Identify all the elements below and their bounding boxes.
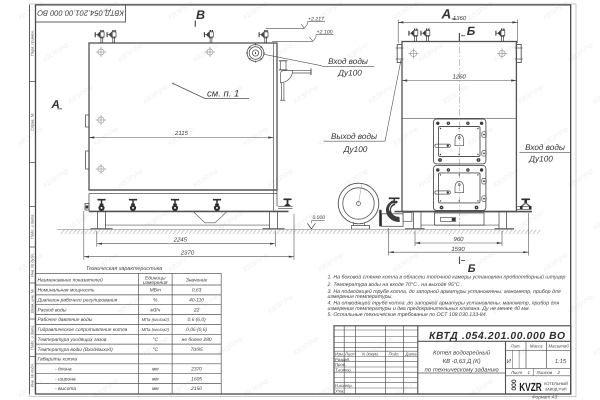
svg-text:КВЗР.РФ: КВЗР.РФ: [142, 84, 170, 106]
svg-text:КВЗР.РФ: КВЗР.РФ: [292, 84, 320, 106]
svg-text:1: 1: [528, 370, 531, 375]
svg-text:N докум.: N докум.: [362, 352, 379, 357]
svg-text:- ширина: - ширина: [55, 377, 76, 382]
svg-text:КВЗР.РФ: КВЗР.РФ: [517, 210, 545, 232]
svg-text:Изм.: Изм.: [335, 352, 344, 357]
svg-text:ООО: ООО: [511, 380, 518, 391]
svg-text:Формат А3: Формат А3: [532, 394, 558, 399]
svg-text:КВЗР.РФ: КВЗР.РФ: [467, 0, 495, 22]
svg-text:Диапазон рабочего регулировани: Диапазон рабочего регулирования: [37, 298, 118, 304]
svg-text:КВЗР.РФ: КВЗР.РФ: [417, 168, 445, 190]
svg-text:МПа (кгс/см2): МПа (кгс/см2): [142, 327, 170, 332]
svg-text:Листов: Листов: [536, 370, 553, 375]
svg-text:2: 2: [557, 370, 561, 375]
svg-text:мм: мм: [152, 387, 159, 392]
svg-text:Вход воды: Вход воды: [525, 143, 565, 152]
svg-text:КВЗР.РФ: КВЗР.РФ: [117, 42, 145, 64]
svg-text:Утв.: Утв.: [335, 388, 345, 393]
svg-text:Вход воды: Вход воды: [328, 57, 368, 66]
svg-text:КВЗР.РФ: КВЗР.РФ: [217, 210, 245, 232]
svg-text:0,63: 0,63: [192, 288, 202, 294]
svg-text:Номинальная мощность: Номинальная мощность: [38, 288, 96, 294]
svg-text:40-110: 40-110: [189, 298, 204, 304]
svg-text:0,06 (0,6): 0,06 (0,6): [186, 327, 207, 333]
svg-text:КВЗР.РФ: КВЗР.РФ: [267, 168, 295, 190]
svg-text:Ду100: Ду100: [528, 155, 553, 164]
svg-text:КВТД.054.201.00.000 ВО: КВТД.054.201.00.000 ВО: [37, 8, 124, 17]
svg-text:КВЗР.РФ: КВЗР.РФ: [267, 294, 295, 316]
svg-text:70/95: 70/95: [190, 347, 203, 353]
svg-text:Котел водогрейный: Котел водогрейный: [433, 350, 491, 357]
svg-text:мм: мм: [152, 377, 159, 382]
svg-text:Значение: Значение: [186, 277, 208, 283]
svg-text:Справ. №: Справ. №: [30, 112, 35, 130]
svg-text:измерения температуры и два пр: измерения температуры и два предохраните…: [328, 306, 531, 312]
svg-text:КВЗР.РФ: КВЗР.РФ: [192, 168, 220, 190]
svg-text:КВЗР.РФ: КВЗР.РФ: [592, 84, 600, 106]
svg-text:МПа (кгс/см2): МПа (кгс/см2): [142, 317, 170, 322]
svg-text:КВЗР.РФ: КВЗР.РФ: [442, 84, 470, 106]
svg-text:ЗАВОД РЭП: ЗАВОД РЭП: [545, 388, 567, 392]
svg-text:2115: 2115: [174, 130, 189, 137]
svg-text:КВЗР.РФ: КВЗР.РФ: [567, 294, 595, 316]
svg-text:измерения: измерения: [143, 281, 168, 286]
svg-text:Дата: Дата: [405, 352, 418, 357]
svg-text:КВЗР.РФ: КВЗР.РФ: [467, 126, 495, 148]
svg-text:Подп. и дата: Подп. и дата: [30, 214, 35, 239]
svg-text:КВЗР.РФ: КВЗР.РФ: [567, 168, 595, 190]
svg-text:Рабочее давление воды: Рабочее давление воды: [38, 317, 93, 323]
svg-text:22: 22: [193, 307, 200, 313]
svg-text:КВЗР.РФ: КВЗР.РФ: [592, 210, 600, 232]
svg-text:Инв. № подл.: Инв. № подл.: [30, 363, 35, 387]
svg-text:КВЗР.РФ: КВЗР.РФ: [242, 252, 270, 274]
svg-text:Перв. примен.: Перв. примен.: [30, 30, 35, 56]
svg-text:Выход воды: Выход воды: [331, 132, 377, 141]
svg-text:2370: 2370: [180, 250, 195, 257]
svg-text:КВЗР.РФ: КВЗР.РФ: [167, 0, 195, 22]
svg-text:КВТД .054.201.00.000 ВО: КВТД .054.201.00.000 ВО: [429, 331, 565, 342]
svg-text:КВ -0,63 Д (К): КВ -0,63 Д (К): [443, 358, 481, 365]
svg-text:А: А: [441, 7, 452, 22]
svg-text:КОТЕЛЬНЫЙ: КОТЕЛЬНЫЙ: [544, 381, 568, 386]
svg-text:Температура уходящих газов: Температура уходящих газов: [38, 337, 107, 343]
svg-text:Техническая характеристика: Техническая характеристика: [86, 266, 162, 272]
svg-text:Лист: Лист: [344, 352, 356, 357]
svg-text:0.000: 0.000: [313, 215, 326, 221]
svg-text:2245: 2245: [173, 237, 188, 244]
svg-text:Т.контр.: Т.контр.: [335, 368, 352, 373]
svg-text:Подп. и дата: Подп. и дата: [30, 325, 35, 350]
svg-text:Масштаб: Масштаб: [549, 344, 570, 349]
svg-text:Взам. инв. №: Взам. инв. №: [30, 288, 35, 313]
svg-text:КВЗР.РФ: КВЗР.РФ: [142, 210, 170, 232]
svg-text:И: И: [507, 359, 512, 365]
svg-text:КВЗР.РФ: КВЗР.РФ: [92, 126, 120, 148]
svg-text:Ду100: Ду100: [343, 145, 368, 154]
svg-text:KVZR: KVZR: [519, 380, 542, 394]
svg-text:Расход воды: Расход воды: [38, 307, 67, 313]
svg-text:КВЗР.РФ: КВЗР.РФ: [292, 336, 320, 358]
svg-text:Б: Б: [467, 24, 476, 38]
svg-text:КВЗР.РФ: КВЗР.РФ: [592, 336, 600, 358]
svg-text:°С: °С: [153, 347, 159, 353]
svg-text:КВЗР.РФ: КВЗР.РФ: [167, 126, 195, 148]
svg-text:КВЗР.РФ: КВЗР.РФ: [42, 42, 70, 64]
svg-text:1260: 1260: [453, 73, 467, 80]
svg-text:не более 280: не более 280: [182, 337, 212, 343]
svg-text:КВЗР.РФ: КВЗР.РФ: [392, 126, 420, 148]
svg-text:- высота: - высота: [55, 387, 76, 392]
svg-text:Габариты котла: Габариты котла: [38, 357, 78, 363]
svg-text:°С: °С: [153, 337, 159, 343]
svg-text:КВЗР.РФ: КВЗР.РФ: [542, 252, 570, 274]
svg-text:КВЗР.РФ: КВЗР.РФ: [392, 0, 420, 22]
svg-text:Лист: Лист: [510, 370, 522, 375]
svg-text:Масса: Масса: [530, 344, 543, 349]
svg-text:измерения температуры.: измерения температуры.: [328, 294, 393, 300]
svg-text:- длина: - длина: [55, 367, 72, 373]
svg-text:Подп.: Подп.: [389, 352, 400, 357]
svg-text:КВЗР.РФ: КВЗР.РФ: [317, 252, 345, 274]
svg-text:1:15: 1:15: [555, 359, 567, 365]
svg-text:Лит.: Лит.: [510, 344, 521, 349]
svg-text:мм: мм: [152, 368, 159, 373]
svg-text:КВЗР.РФ: КВЗР.РФ: [242, 126, 270, 148]
svg-text:В: В: [196, 8, 205, 22]
svg-text:А: А: [51, 99, 60, 111]
svg-text:0,6 (6,0): 0,6 (6,0): [187, 317, 206, 323]
svg-text:КВЗР.РФ: КВЗР.РФ: [342, 168, 370, 190]
svg-text:КВЗР.РФ: КВЗР.РФ: [517, 84, 545, 106]
svg-text:Температура воды (Вход/выход): Температура воды (Вход/выход): [38, 347, 114, 353]
svg-text:Б: Б: [468, 263, 476, 275]
svg-text:960: 960: [453, 236, 464, 243]
svg-text:%: %: [153, 298, 158, 304]
svg-text:5. Остальные технические треб: 5. Остальные технические требования по О…: [328, 312, 488, 318]
svg-text:2150: 2150: [190, 386, 202, 392]
svg-text:2370: 2370: [190, 367, 202, 373]
svg-text:КВЗР.РФ: КВЗР.РФ: [117, 168, 145, 190]
svg-text:см. п. 1: см. п. 1: [207, 89, 239, 100]
svg-text:КВЗР.РФ: КВЗР.РФ: [67, 84, 95, 106]
svg-text:по техническому заданию: по техническому заданию: [425, 366, 500, 373]
svg-text:КВЗР.РФ: КВЗР.РФ: [192, 42, 220, 64]
svg-text:КВЗР.РФ: КВЗР.РФ: [42, 168, 70, 190]
svg-text:МВт: МВт: [150, 288, 161, 294]
svg-text:Инв. № дубл.: Инв. № дубл.: [30, 253, 35, 277]
svg-text:1590: 1590: [451, 246, 465, 253]
svg-text:м3/ч: м3/ч: [150, 307, 160, 313]
svg-text:Наименование показателей: Наименование показателей: [38, 277, 103, 283]
svg-text:КВЗР.РФ: КВЗР.РФ: [542, 0, 570, 22]
svg-text:КВЗР.РФ: КВЗР.РФ: [367, 84, 395, 106]
svg-text:КВЗР.РФ: КВЗР.РФ: [392, 252, 420, 274]
svg-text:1605: 1605: [191, 376, 202, 382]
svg-text:Пров.: Пров.: [335, 362, 346, 367]
svg-text:1. На боковой стенке котла в: 1. На боковой стенке котла в области топ…: [328, 275, 566, 281]
svg-text:КВЗР.РФ: КВЗР.РФ: [417, 42, 445, 64]
svg-text:Ду100: Ду100: [337, 69, 362, 78]
svg-text:Гидравлическое сопротивление к: Гидравлическое сопротивление котла: [38, 327, 128, 333]
svg-text:КВЗР.РФ: КВЗР.РФ: [242, 0, 270, 22]
svg-text:КВЗР.РФ: КВЗР.РФ: [567, 42, 595, 64]
svg-text:2. Температура воды на входе: 2. Температура воды на входе 70°С , на в…: [327, 282, 463, 288]
